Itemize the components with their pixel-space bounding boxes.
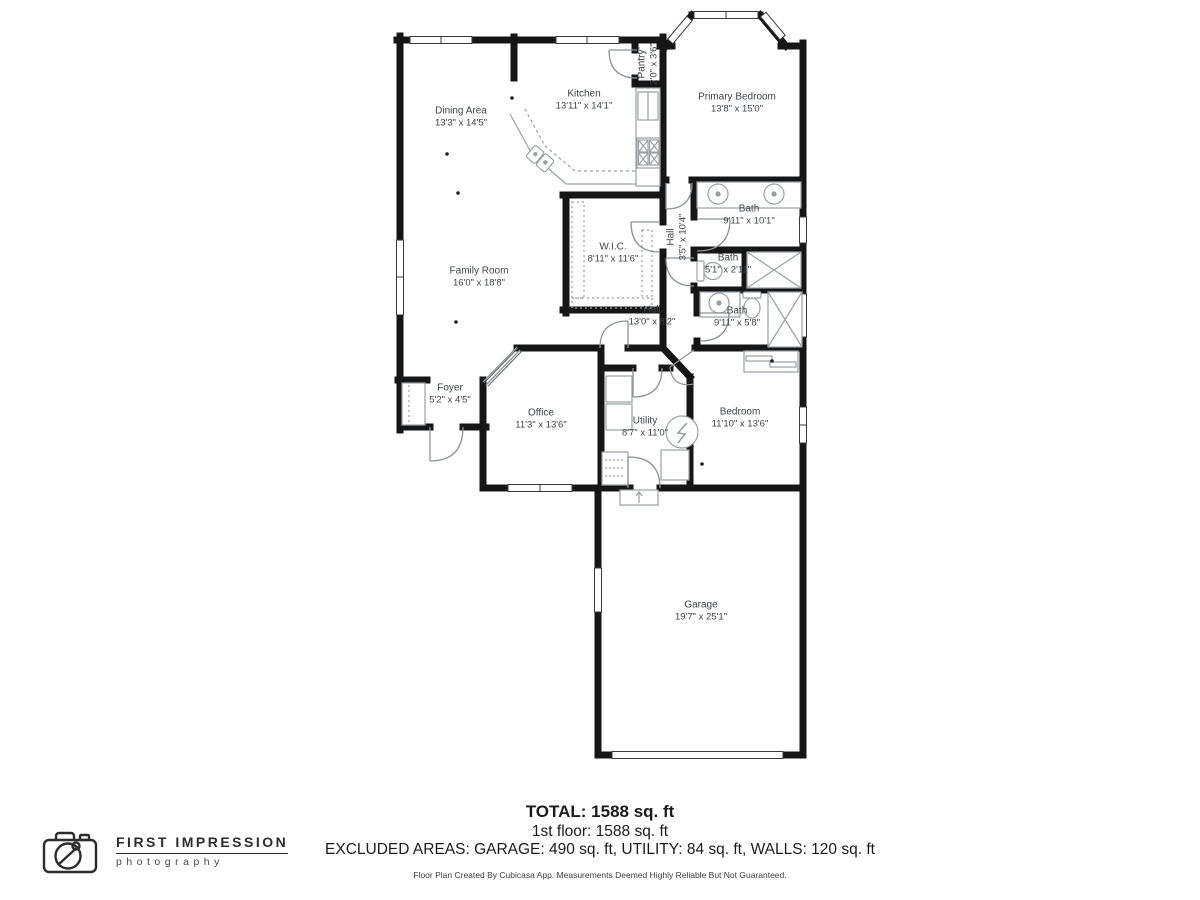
shelf-icon [602,452,628,485]
washer-icon [606,376,632,402]
toilet-icon [697,261,722,281]
camera-icon [42,828,106,876]
logo-subtitle: photography [116,856,288,868]
water-heater-icon [666,416,698,448]
step-icon [620,490,658,505]
shower-icon [747,252,801,288]
closet-icon [402,383,425,425]
double-vanity-icon [697,182,801,208]
logo-text: FIRST IMPRESSION photography [116,828,288,868]
toilet-icon [743,292,761,318]
logo-name: FIRST IMPRESSION [116,834,288,854]
total-area-text: TOTAL: 1588 sq. ft [0,802,1200,822]
walls [397,15,803,755]
photographer-logo: FIRST IMPRESSION photography [42,828,288,876]
floor-plan-drawing [0,0,1200,900]
shower-icon [768,292,802,347]
stove-icon [637,138,660,168]
kitchen-sink-icon [526,145,555,173]
dryer-icon [606,404,632,430]
floor-plan-page: Dining Area13'3" x 14'5"Kitchen13'11" x … [0,0,1200,900]
